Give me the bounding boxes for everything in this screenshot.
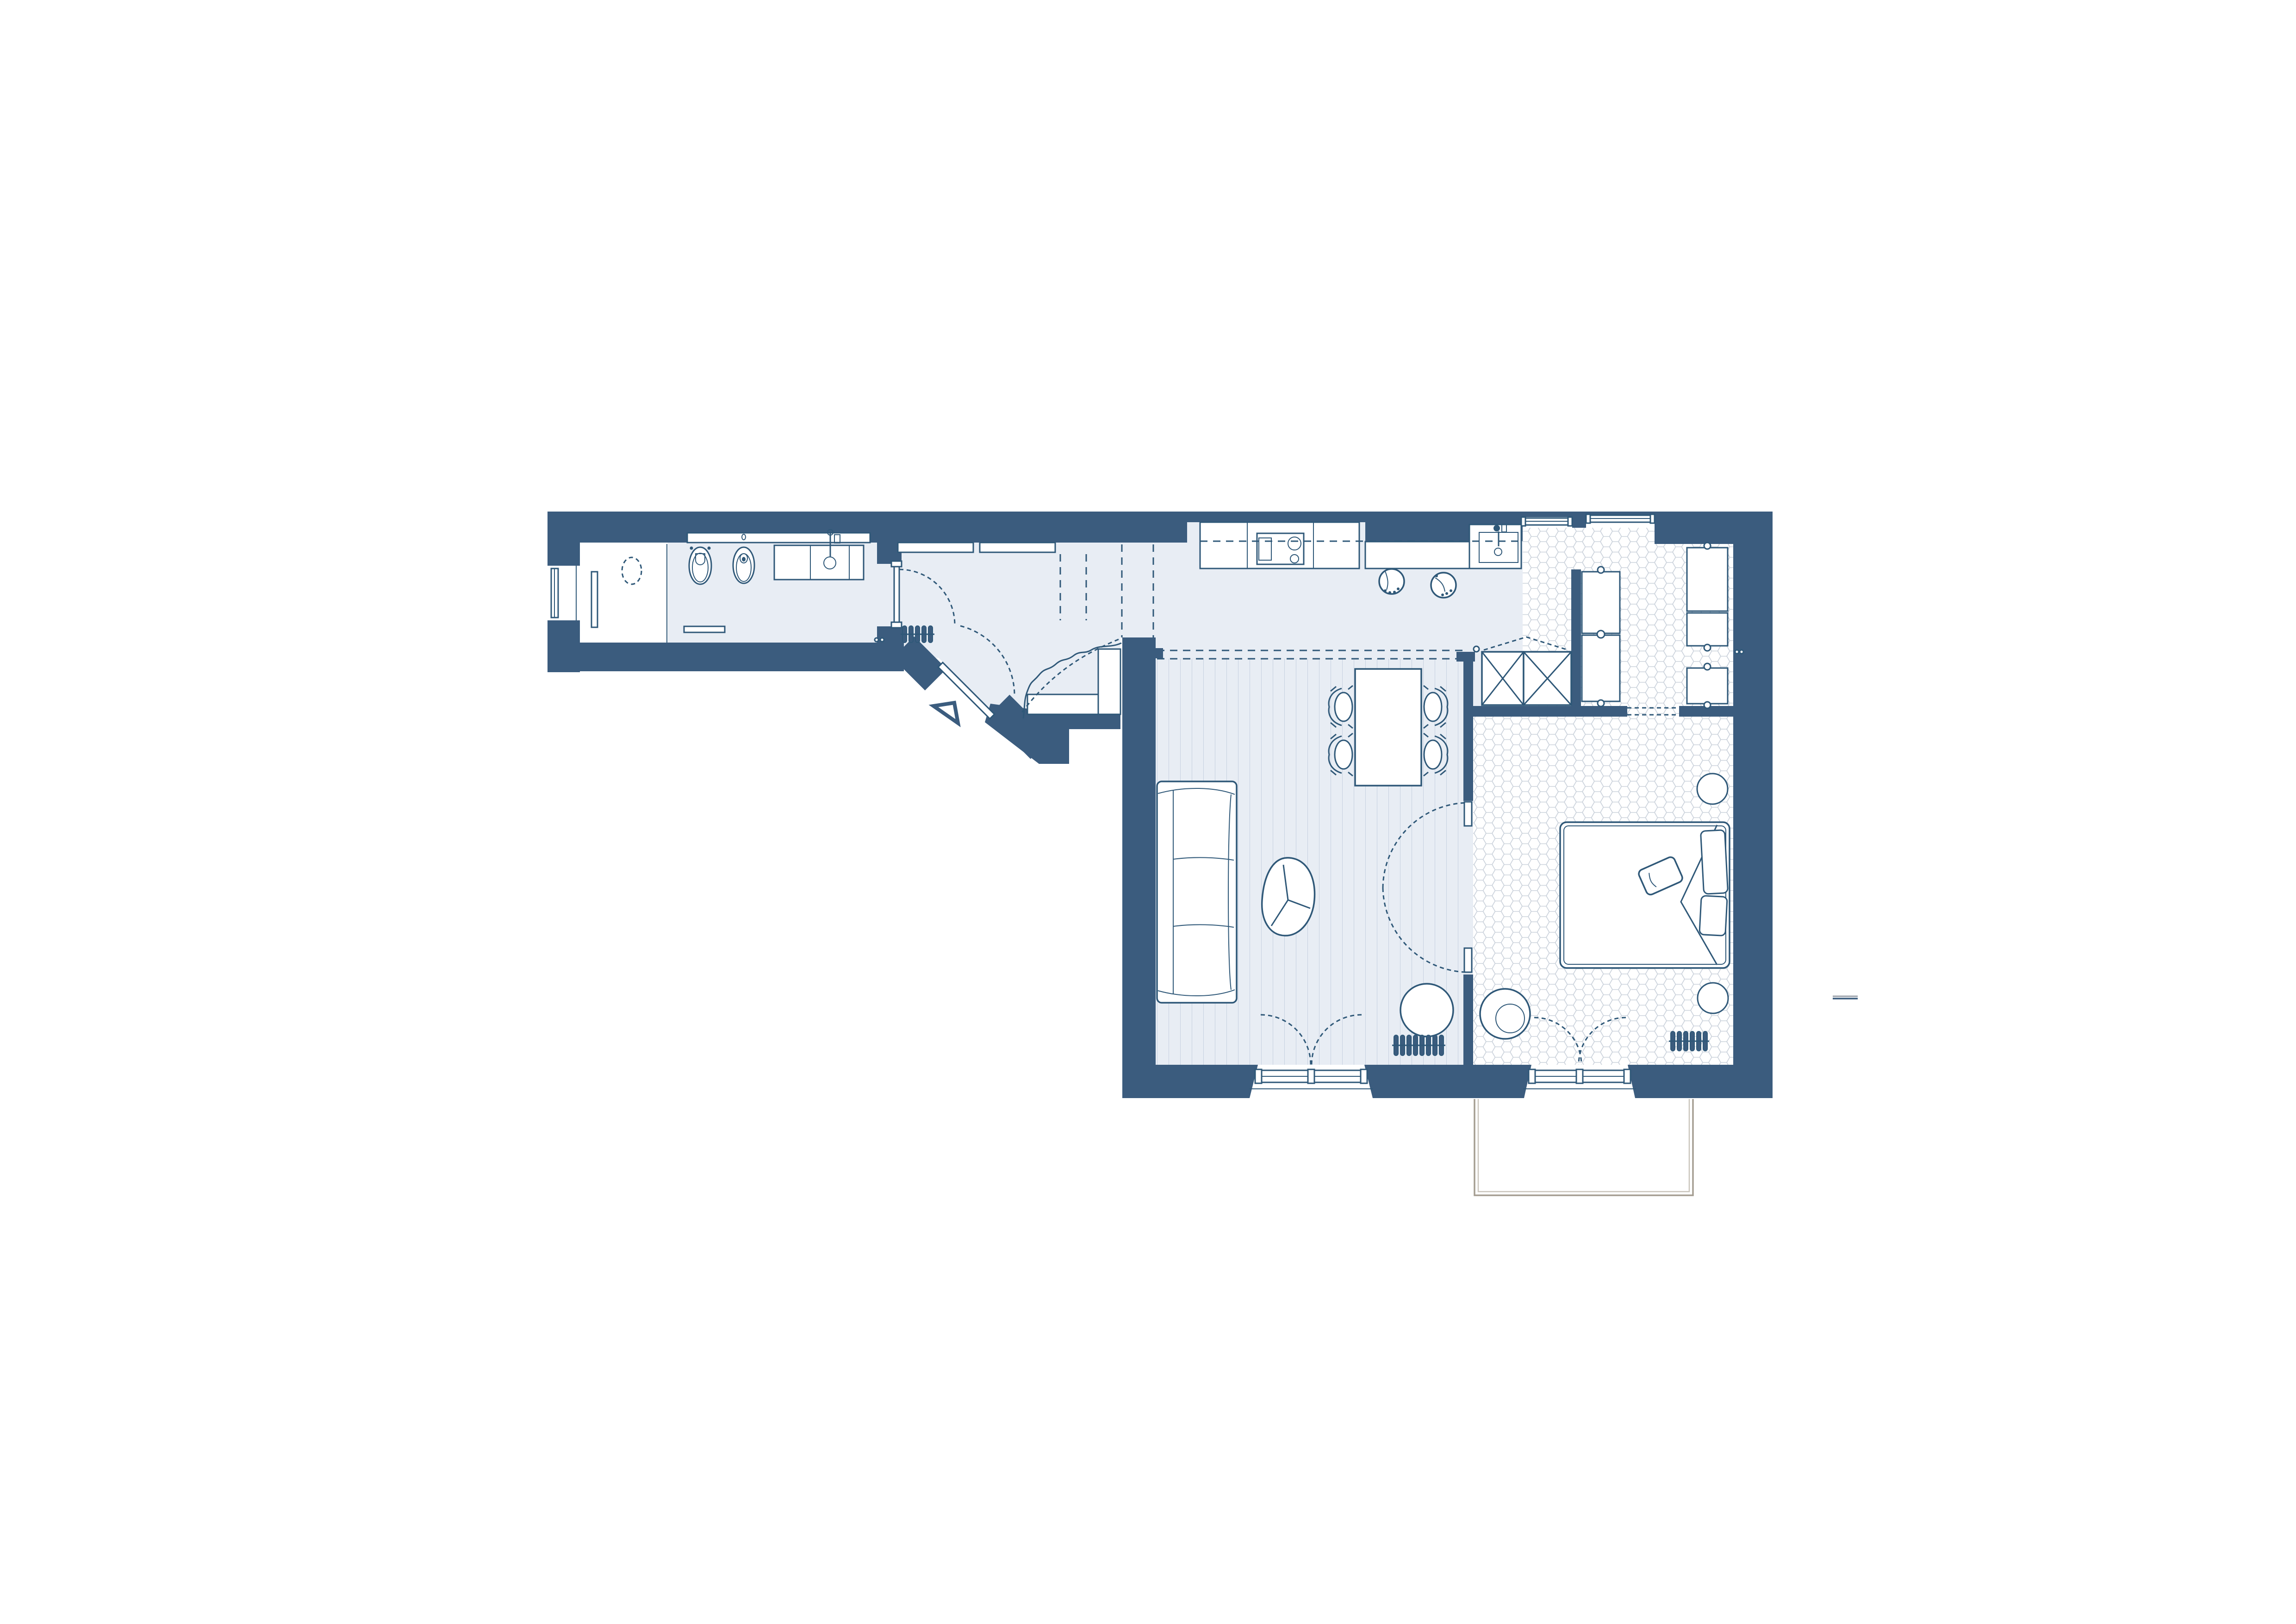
wall-top-over-counter xyxy=(1187,512,1365,522)
wall-living-bedroom-lower xyxy=(1463,974,1473,1065)
toilet xyxy=(689,547,711,585)
hall-radiator xyxy=(901,626,934,643)
door-stop-dot xyxy=(1740,650,1743,654)
hinge-dot xyxy=(1474,646,1479,652)
entrance-triangle-marker xyxy=(933,703,958,723)
wall-hall-south-band xyxy=(1032,714,1120,729)
faucet-base xyxy=(1493,525,1500,531)
wall-bottom xyxy=(1122,1065,1773,1098)
wall-top-over-kitchen-window xyxy=(1521,512,1572,517)
wall-stub-between-windows xyxy=(1572,512,1586,528)
counter-left-run xyxy=(1200,522,1359,568)
wall-wing-bottom xyxy=(548,643,877,671)
dining-table xyxy=(1355,669,1421,786)
window-kitchen xyxy=(1521,517,1572,526)
wall-living-bedroom-upper xyxy=(1463,652,1473,801)
door-stop-dot xyxy=(875,638,878,642)
vestibule-radiator-panel xyxy=(591,572,597,627)
bar-stool xyxy=(1379,569,1404,594)
wall-right xyxy=(1733,544,1773,1098)
cooktop xyxy=(1257,533,1304,564)
window-left-wing xyxy=(548,566,580,620)
scale-tick xyxy=(1833,996,1858,999)
wall-top-right xyxy=(1655,512,1773,544)
knob xyxy=(1704,543,1711,549)
wardrobe-left-column xyxy=(1582,567,1620,706)
wall-living-left-stub xyxy=(1156,648,1163,658)
bar-stool xyxy=(1431,573,1456,598)
tall-cabinet xyxy=(1098,649,1120,714)
floor-plan-sheet xyxy=(0,0,2296,1624)
hall-wall-cabinet xyxy=(898,543,973,552)
door-stop-dot xyxy=(880,638,884,642)
door-stop-dot xyxy=(1735,650,1739,654)
floor-plan-drawing xyxy=(0,0,2296,1624)
knob xyxy=(1704,663,1711,670)
wall-left-above-window xyxy=(548,512,580,567)
bath-mat xyxy=(684,626,725,632)
nightstand xyxy=(1698,983,1728,1013)
balcony xyxy=(1475,1099,1693,1195)
knob xyxy=(1598,700,1604,706)
wall-living-left xyxy=(1122,637,1156,1098)
knob xyxy=(1704,644,1711,651)
counter-mid-section xyxy=(1365,542,1469,568)
round-armchair xyxy=(1480,989,1530,1039)
wall-closet-inner xyxy=(1571,569,1581,706)
pillow xyxy=(1700,830,1728,894)
double-bed xyxy=(1560,822,1730,968)
storage-bench xyxy=(1027,694,1098,714)
knob xyxy=(1597,631,1605,638)
round-pouf xyxy=(1400,984,1453,1037)
bath-wall-shelf xyxy=(687,533,870,543)
wall-bedroom-closet-left xyxy=(1470,706,1627,717)
sofa xyxy=(1157,781,1237,1003)
knob xyxy=(1598,567,1604,573)
window-closet xyxy=(1586,514,1655,523)
knob xyxy=(1704,702,1711,708)
sink-counter xyxy=(1469,525,1521,568)
pillow xyxy=(1699,896,1727,936)
coffee-table xyxy=(1262,858,1315,936)
nightstand xyxy=(1697,774,1728,804)
wardrobe-right-column xyxy=(1687,543,1728,708)
hall-wall-cabinet xyxy=(980,543,1055,552)
